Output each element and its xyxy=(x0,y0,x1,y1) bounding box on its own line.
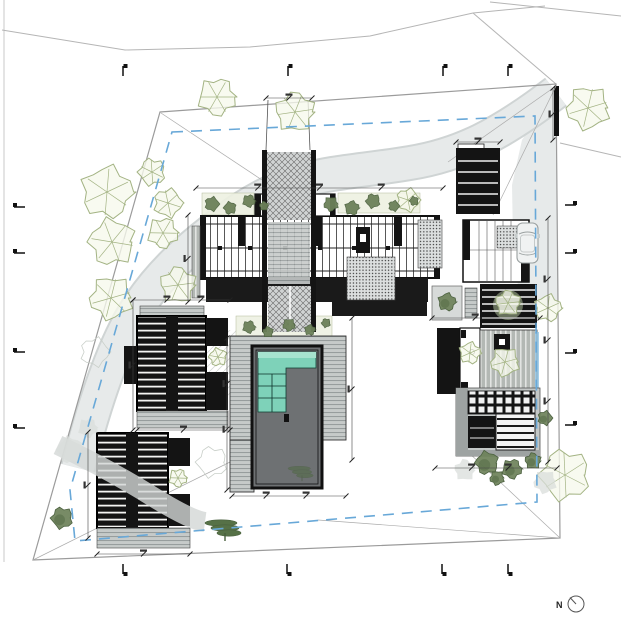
north-label: N xyxy=(556,600,563,610)
paved-court-dots xyxy=(347,257,395,300)
southeast-wing xyxy=(456,388,540,456)
site-plan-sheet: N xyxy=(0,0,621,628)
joist-deck xyxy=(496,414,535,450)
stair-block xyxy=(456,144,500,214)
east-black-volume xyxy=(437,328,460,394)
walkway-wall-right xyxy=(311,150,316,332)
boundary-wall xyxy=(554,86,559,136)
walkway-wall-left xyxy=(262,150,267,332)
site-plan-drawing: N xyxy=(0,0,621,628)
